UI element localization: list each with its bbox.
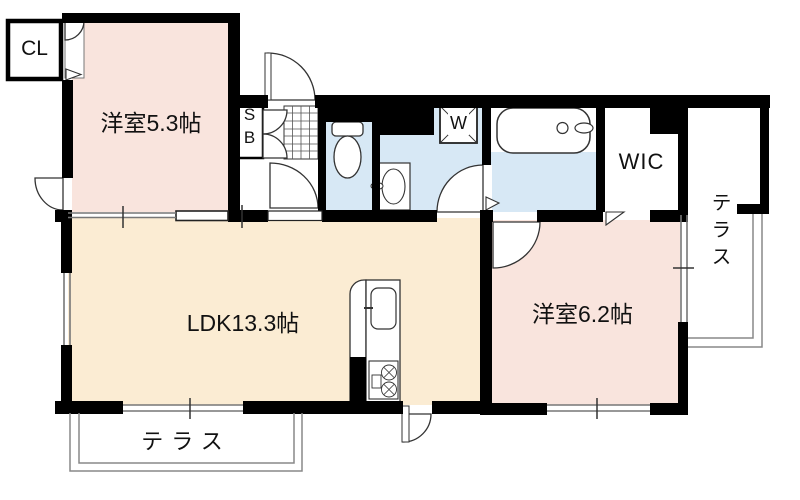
entry-door bbox=[265, 53, 315, 100]
closet-door bbox=[65, 21, 84, 80]
bedroom1-ldk-window bbox=[68, 213, 176, 218]
terrace-right-label: テラス bbox=[704, 192, 734, 312]
hall-ldk-opening bbox=[268, 211, 322, 221]
wic-label: WIC bbox=[605, 149, 678, 175]
bedroom1-label: 洋室5.3帖 bbox=[72, 104, 230, 138]
terrace-bottom-label: テラス bbox=[86, 424, 286, 456]
ldk-bottom-window bbox=[123, 405, 243, 411]
closet-label: CL bbox=[8, 37, 61, 61]
entry-tile bbox=[284, 106, 318, 159]
shoebox-label-s: S bbox=[236, 103, 263, 126]
shoebox-double-doors bbox=[263, 110, 287, 158]
kitchen-sink-icon bbox=[371, 288, 396, 329]
bedroom1-sliding-panel bbox=[176, 211, 228, 221]
bedroom1-exterior-door bbox=[35, 178, 63, 210]
bedroom2-label: 洋室6.2帖 bbox=[485, 295, 680, 329]
ldk-rear-door bbox=[402, 406, 431, 442]
floorplan: CL 洋室5.3帖 S B W WIC LDK13.3帖 洋室6.2帖 テラス … bbox=[0, 0, 800, 500]
hall-door bbox=[270, 163, 318, 208]
washer-label: W bbox=[440, 113, 477, 134]
shoebox-label: S B bbox=[236, 103, 263, 149]
bedroom2-bottom-window bbox=[547, 405, 650, 411]
shoebox-label-b: B bbox=[236, 126, 263, 149]
bathtub-icon bbox=[497, 108, 593, 153]
bath-floor bbox=[488, 152, 600, 212]
ldk-label: LDK13.3帖 bbox=[128, 304, 358, 338]
toilet-icon bbox=[332, 122, 363, 178]
